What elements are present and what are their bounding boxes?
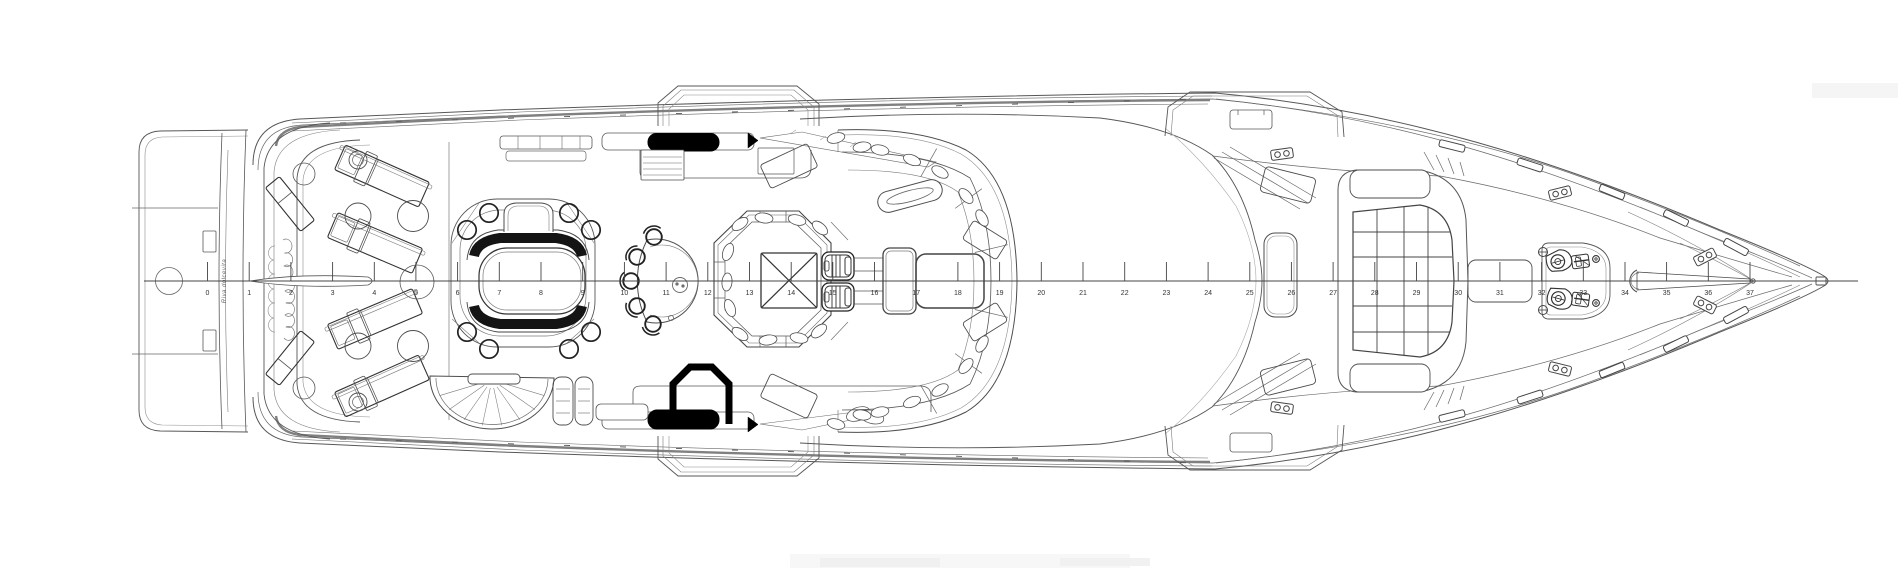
svg-text:29: 29 [1413, 290, 1421, 297]
svg-text:0: 0 [206, 290, 210, 297]
svg-text:9: 9 [581, 290, 585, 297]
svg-text:3: 3 [331, 290, 335, 297]
svg-text:20: 20 [1037, 290, 1045, 297]
svg-text:31: 31 [1496, 290, 1504, 297]
svg-text:23: 23 [1163, 290, 1171, 297]
svg-text:16: 16 [871, 290, 879, 297]
svg-text:33: 33 [1579, 290, 1587, 297]
svg-text:6: 6 [456, 290, 460, 297]
svg-text:36: 36 [1704, 290, 1712, 297]
svg-text:35: 35 [1663, 290, 1671, 297]
svg-text:8: 8 [539, 290, 543, 297]
svg-text:34: 34 [1621, 290, 1629, 297]
svg-text:15: 15 [829, 290, 837, 297]
svg-text:22: 22 [1121, 290, 1129, 297]
svg-text:13: 13 [746, 290, 754, 297]
svg-text:18: 18 [954, 290, 962, 297]
svg-text:30: 30 [1454, 290, 1462, 297]
svg-text:14: 14 [787, 290, 795, 297]
svg-text:37: 37 [1746, 290, 1754, 297]
svg-text:4: 4 [372, 290, 376, 297]
svg-text:10: 10 [621, 290, 629, 297]
svg-text:32: 32 [1538, 290, 1546, 297]
svg-text:27: 27 [1329, 290, 1337, 297]
svg-text:19: 19 [996, 290, 1004, 297]
svg-text:5: 5 [414, 290, 418, 297]
svg-text:26: 26 [1288, 290, 1296, 297]
svg-text:25: 25 [1246, 290, 1254, 297]
svg-text:21: 21 [1079, 290, 1087, 297]
svg-text:2: 2 [289, 290, 293, 297]
svg-text:12: 12 [704, 290, 712, 297]
svg-text:11: 11 [662, 290, 669, 297]
svg-text:28: 28 [1371, 290, 1379, 297]
svg-text:24: 24 [1204, 290, 1212, 297]
svg-text:17: 17 [912, 290, 920, 297]
svg-text:7: 7 [497, 290, 501, 297]
svg-text:1: 1 [247, 290, 251, 297]
